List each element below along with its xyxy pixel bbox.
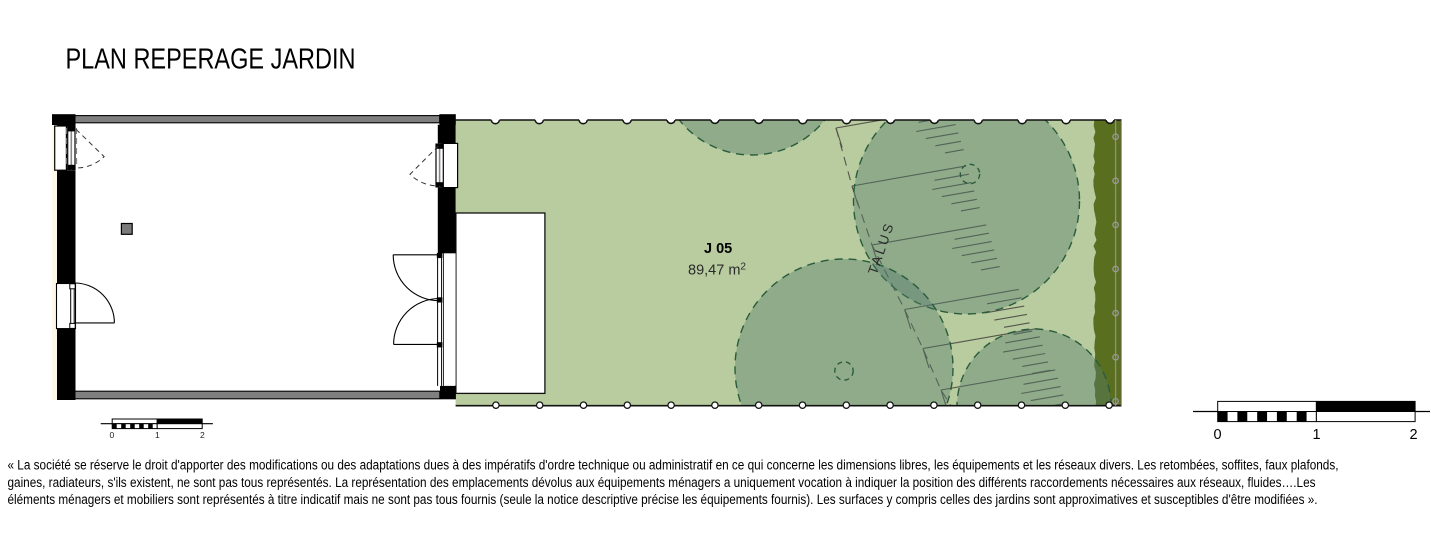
svg-text:2: 2 bbox=[200, 430, 205, 440]
svg-text:« La société se réserve le dro: « La société se réserve le droit d'appor… bbox=[8, 458, 1339, 473]
svg-text:J 05: J 05 bbox=[704, 241, 732, 257]
svg-text:éléments ménagers et mobiliers: éléments ménagers et mobiliers sont repr… bbox=[8, 492, 1318, 507]
svg-text:gaines, radiateurs, s'ils exis: gaines, radiateurs, s'ils existent, ne s… bbox=[8, 475, 1316, 490]
svg-text:0: 0 bbox=[1214, 427, 1222, 443]
svg-text:89,47 m2: 89,47 m2 bbox=[688, 261, 746, 278]
svg-text:0: 0 bbox=[110, 430, 115, 440]
svg-text:1: 1 bbox=[1313, 427, 1321, 443]
svg-text:1: 1 bbox=[155, 430, 160, 440]
svg-text:PLAN REPERAGE JARDIN: PLAN REPERAGE JARDIN bbox=[66, 43, 356, 75]
svg-text:2: 2 bbox=[1410, 427, 1418, 443]
